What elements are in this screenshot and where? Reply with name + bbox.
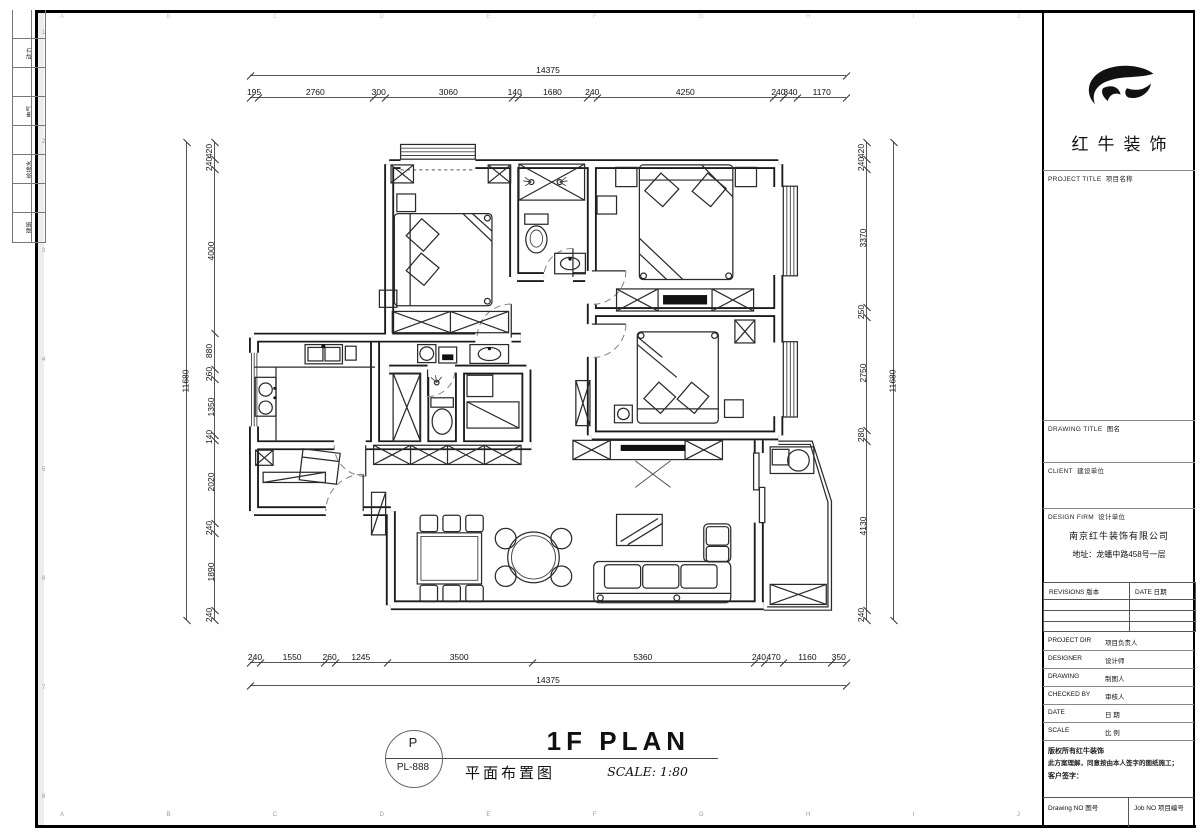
revisions-cn: 版本 xyxy=(1086,589,1099,596)
date-col-cn: 日期 xyxy=(1154,589,1167,596)
client-en: CLIENT xyxy=(1048,468,1073,475)
design-firm-section: DESIGN FIRM 设计单位 南京红牛装饰有限公司 地址：龙蟠中路458号一… xyxy=(1043,508,1195,560)
master-bedroom-furniture xyxy=(597,165,756,311)
bedroom1-furniture xyxy=(379,165,510,333)
copyright-line3: 客户签字： xyxy=(1048,771,1192,781)
drawing-sheet: 动力电气给排水建筑 ABCDEFGHIJ ABCDEFGHIJ 12345678 xyxy=(0,0,1200,840)
designer-row: DESIGNER设计师 xyxy=(1043,650,1194,669)
frame-top xyxy=(36,10,1195,13)
project-dir-row: PROJECT DIR项目负责人 xyxy=(1043,632,1194,651)
project-title-cn: 项目名称 xyxy=(1106,176,1133,183)
dim-left-segments: 4202404000880260135014020202401890240 xyxy=(214,142,215,620)
drawing-title-en: DRAWING TITLE xyxy=(1048,426,1102,433)
date-row: DATE日 期 xyxy=(1043,704,1194,723)
job-no-cn: 项目编号 xyxy=(1158,805,1184,812)
copyright-line1: 版权所有红牛装饰 xyxy=(1048,746,1192,756)
dim-right-segments: 420240337025027502804130240 xyxy=(866,142,867,620)
company-name: 南京红牛装饰有限公司 xyxy=(1043,529,1195,542)
rednbull-logo-icon xyxy=(1079,58,1159,120)
client-section: CLIENT 建设单位 xyxy=(1043,462,1195,475)
design-firm-cn: 设计单位 xyxy=(1098,514,1125,521)
dim-top-segments: 19527603003060140168024042502403401170 xyxy=(250,97,846,98)
checked-by-row: CHECKED BY审核人 xyxy=(1043,686,1194,705)
bedroom3-furniture xyxy=(576,320,755,426)
dim-bottom-total: 14375 xyxy=(250,685,846,686)
balcony-right xyxy=(764,441,832,610)
drawing-code-letter: P xyxy=(385,735,441,750)
dim-left-total: 11680 xyxy=(186,142,187,620)
copyright-line2: 此方案理解，同意按由本人签字的图纸施工； xyxy=(1048,757,1192,767)
bottom-ruler: ABCDEFGHIJ xyxy=(60,812,1020,818)
revisions-en: REVISIONS xyxy=(1049,589,1084,596)
floor-plan xyxy=(249,142,846,620)
frame-bottom xyxy=(35,825,1196,828)
plan-title-en: 1F PLAN xyxy=(547,726,690,757)
corridor-fixtures xyxy=(418,345,509,364)
drawing-row: DRAWING制图人 xyxy=(1043,668,1194,687)
drawing-code: PL-888 xyxy=(385,762,441,773)
discipline-table-divider xyxy=(31,10,32,242)
dim-right-total: 11680 xyxy=(893,142,894,620)
dim-bottom-segments: 24015502601245350053602404701160350 xyxy=(250,662,846,663)
kitchen-fixtures xyxy=(254,344,375,440)
left-ruler: 12345678 xyxy=(42,30,45,800)
revisions-table: REVISIONS 版本 DATE 日期 xyxy=(1043,582,1196,632)
date-col-en: DATE xyxy=(1135,589,1152,596)
scale-row: SCALE比 例 xyxy=(1043,722,1194,741)
title-block: 红牛装饰 PROJECT TITLE 项目名称 DRAWING TITLE 图名… xyxy=(1043,10,1195,826)
design-firm-en: DESIGN FIRM xyxy=(1048,514,1094,521)
drawing-title-cn: 图名 xyxy=(1107,426,1121,433)
top-ruler: ABCDEFGHIJ xyxy=(60,14,1020,20)
plan-scale: SCALE: 1:80 xyxy=(607,764,688,779)
brand-name: 红牛装饰 xyxy=(1043,130,1195,155)
living-room-furniture xyxy=(374,440,731,602)
dining-furniture xyxy=(417,515,571,601)
company-address: 地址：龙蟠中路458号一层 xyxy=(1043,549,1195,560)
job-no-en: Job NO xyxy=(1134,805,1156,812)
dim-top-total: 14375 xyxy=(250,75,846,76)
client-cn: 建设单位 xyxy=(1077,468,1104,475)
drawing-title-section: DRAWING TITLE 图名 xyxy=(1043,420,1195,433)
plan-title-cn: 平面布置图 xyxy=(465,762,555,783)
drawing-no-en: Drawing NO xyxy=(1048,805,1083,812)
drawing-no-cn: 图号 xyxy=(1085,805,1098,812)
project-title-section: PROJECT TITLE 项目名称 xyxy=(1043,170,1195,183)
drawing-number-row: Drawing NO 图号 Job NO 项目编号 xyxy=(1043,797,1194,827)
project-title-en: PROJECT TITLE xyxy=(1048,176,1102,183)
discipline-table: 动力电气给排水建筑 xyxy=(12,10,46,243)
